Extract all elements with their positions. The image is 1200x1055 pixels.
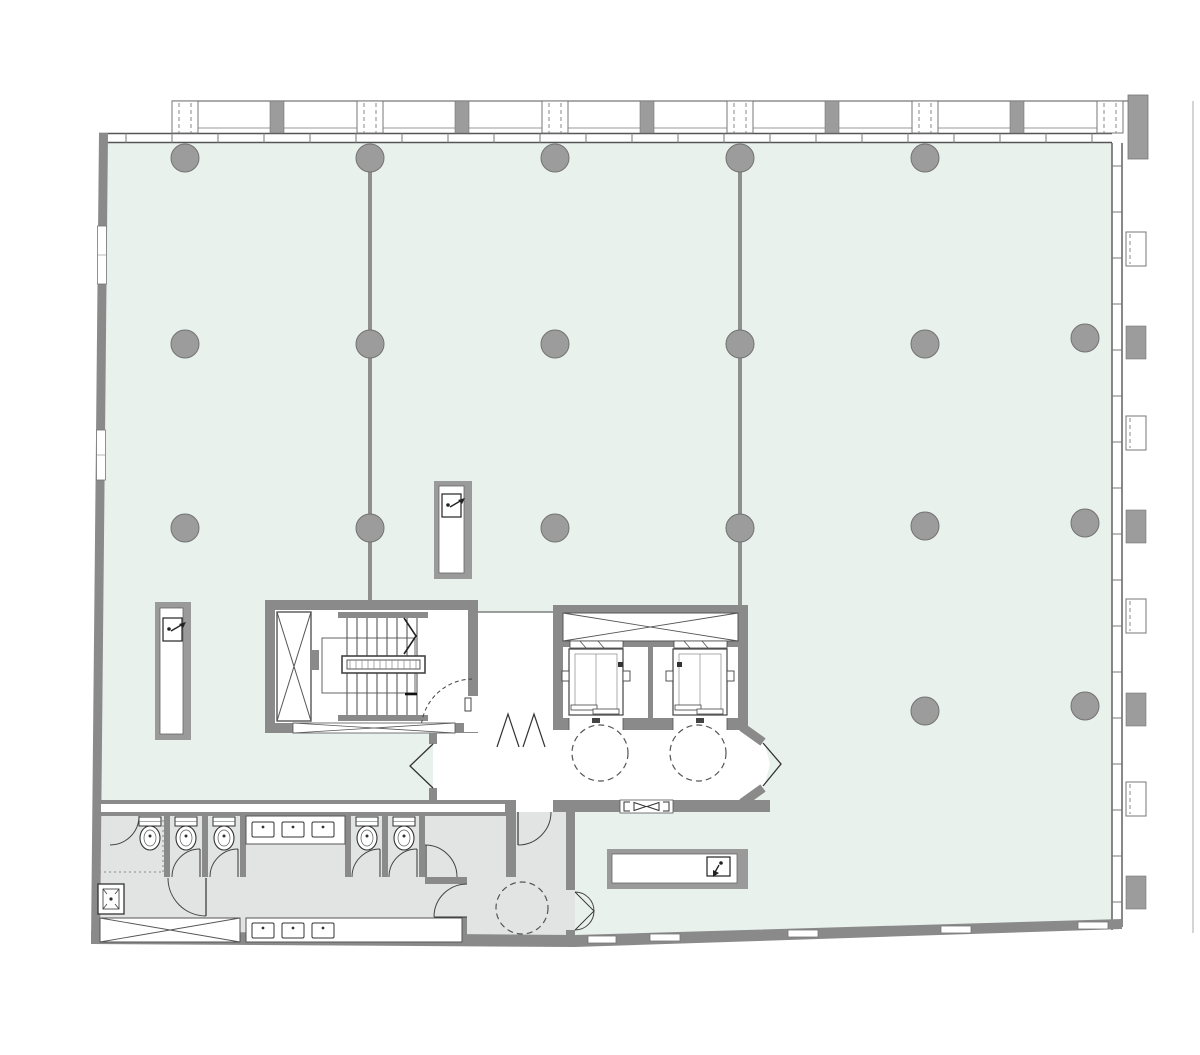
- left-wall-window-2: [97, 430, 106, 480]
- vestibule-wall-east-lower: [566, 930, 575, 945]
- solid-pier: [1126, 693, 1146, 726]
- toilet: [356, 817, 378, 850]
- solid-pier: [640, 101, 654, 133]
- toilet: [175, 817, 197, 850]
- sink: [312, 923, 334, 938]
- stair-handrail: [342, 656, 425, 673]
- column: [911, 330, 939, 358]
- stair-base-cross-brace: [293, 723, 455, 733]
- wall-louvre-symbol: [620, 800, 673, 813]
- stair-bottom-landing-bar: [338, 715, 428, 721]
- column: [171, 514, 199, 542]
- solid-pier: [1126, 326, 1146, 359]
- column: [726, 144, 754, 172]
- sinks-south: [252, 923, 334, 938]
- column: [541, 144, 569, 172]
- corridor-wall-west: [506, 812, 516, 877]
- cross-braced-counter: [100, 918, 240, 942]
- column: [726, 514, 754, 542]
- extinguisher-icon: [163, 618, 186, 641]
- stair-top-landing-bar: [338, 612, 428, 618]
- glazed-pier: [1126, 232, 1146, 266]
- column: [911, 144, 939, 172]
- sink: [282, 822, 304, 837]
- column: [1071, 324, 1099, 352]
- sink: [282, 923, 304, 938]
- column: [726, 330, 754, 358]
- shaft-cross-brace: [563, 613, 738, 641]
- toilet: [139, 817, 161, 850]
- elevator-core: [553, 605, 748, 730]
- column: [911, 697, 939, 725]
- sink-counter-south: [246, 918, 462, 942]
- sink: [252, 822, 274, 837]
- column: [1071, 692, 1099, 720]
- glazed-pier: [1126, 599, 1146, 633]
- column: [1071, 509, 1099, 537]
- column: [541, 330, 569, 358]
- solid-pier: [270, 101, 284, 133]
- glazed-pier: [1126, 782, 1146, 816]
- solid-pier: [455, 101, 469, 133]
- solid-pier: [1010, 101, 1024, 133]
- column: [356, 144, 384, 172]
- floor-plan-page: [0, 0, 1200, 1055]
- elevator-car-left: [562, 641, 630, 715]
- sinks-north: [252, 822, 334, 837]
- toilet: [213, 817, 235, 850]
- glazed-pier: [357, 101, 383, 133]
- column: [541, 514, 569, 542]
- glazed-pier: [172, 101, 198, 133]
- hose-reel-cabinet-west: [155, 602, 191, 740]
- solid-pier: [1126, 510, 1146, 543]
- hose-reel-cabinet-south: [607, 849, 748, 889]
- room-partition-south: [425, 877, 467, 884]
- elevator-car-right: [666, 641, 734, 715]
- sink: [312, 822, 334, 837]
- extinguisher-icon: [707, 857, 730, 877]
- stair-core: [265, 600, 478, 733]
- column: [911, 512, 939, 540]
- hose-reel-cabinet-center: [434, 481, 472, 579]
- left-wall-window-1: [98, 226, 107, 284]
- extinguisher-icon: [442, 494, 465, 517]
- mop-sink: [98, 884, 124, 914]
- column: [356, 330, 384, 358]
- glazed-pier: [542, 101, 568, 133]
- glazed-pier: [727, 101, 753, 133]
- facade-corner-pier: [1128, 95, 1148, 159]
- sink: [252, 923, 274, 938]
- restroom-north-wall-cavity: [101, 804, 505, 812]
- column: [171, 330, 199, 358]
- corridor-wall-east: [566, 812, 575, 890]
- glazed-pier: [1126, 416, 1146, 450]
- toilet: [393, 817, 415, 850]
- floor-plan-drawing: [0, 0, 1200, 1055]
- glazed-pier: [912, 101, 938, 133]
- solid-pier: [825, 101, 839, 133]
- column: [356, 514, 384, 542]
- solid-pier: [1126, 876, 1146, 909]
- column: [171, 144, 199, 172]
- vestibule-west-opening: [458, 884, 467, 917]
- glazed-pier: [1097, 101, 1123, 133]
- elevator-divider-wall: [648, 647, 653, 718]
